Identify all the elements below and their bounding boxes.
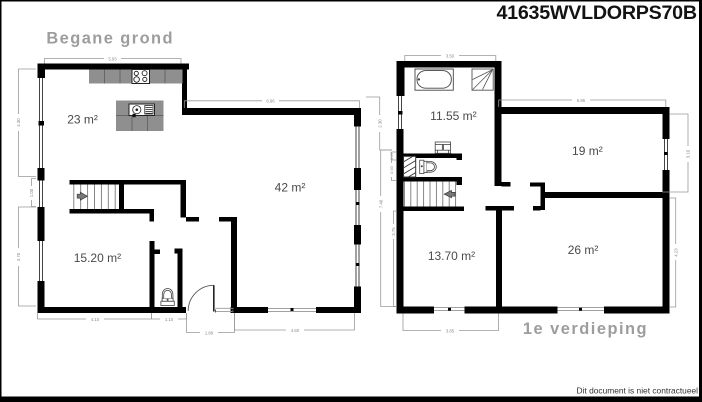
svg-text:4.30: 4.30: [16, 118, 21, 127]
svg-text:7.40: 7.40: [378, 199, 383, 208]
svg-text:11.55 m²: 11.55 m²: [430, 109, 476, 123]
svg-text:41635WVLDORPS70B: 41635WVLDORPS70B: [497, 2, 697, 24]
svg-text:6.95: 6.95: [577, 98, 586, 103]
svg-text:15.20 m²: 15.20 m²: [74, 251, 121, 265]
svg-text:1e verdieping: 1e verdieping: [523, 320, 648, 338]
svg-text:0.93: 0.93: [389, 165, 394, 174]
svg-text:1.89: 1.89: [205, 330, 214, 335]
svg-text:4.10: 4.10: [91, 317, 100, 322]
svg-text:3.50: 3.50: [446, 53, 455, 58]
svg-text:Begane grond: Begane grond: [46, 29, 174, 47]
svg-text:13.70 m²: 13.70 m²: [428, 249, 475, 263]
svg-text:26 m²: 26 m²: [568, 243, 599, 257]
svg-text:3.10: 3.10: [686, 149, 691, 158]
svg-text:19 m²: 19 m²: [572, 144, 603, 158]
svg-text:5.93: 5.93: [108, 56, 117, 61]
svg-text:3.85: 3.85: [446, 328, 455, 333]
svg-text:6.96: 6.96: [266, 98, 275, 103]
svg-text:4.23: 4.23: [673, 248, 678, 257]
svg-text:2.30: 2.30: [377, 119, 382, 128]
svg-text:42 m²: 42 m²: [275, 180, 306, 194]
svg-text:23 m²: 23 m²: [67, 112, 98, 126]
svg-text:1.10: 1.10: [165, 317, 174, 322]
svg-text:Dit document is niet contractu: Dit document is niet contractueel: [577, 386, 699, 396]
svg-text:3.75: 3.75: [391, 227, 396, 236]
svg-text:4.60: 4.60: [291, 328, 300, 333]
svg-text:0.27: 0.27: [389, 151, 394, 160]
svg-text:3.70: 3.70: [16, 252, 21, 261]
svg-text:1.00: 1.00: [29, 188, 34, 197]
